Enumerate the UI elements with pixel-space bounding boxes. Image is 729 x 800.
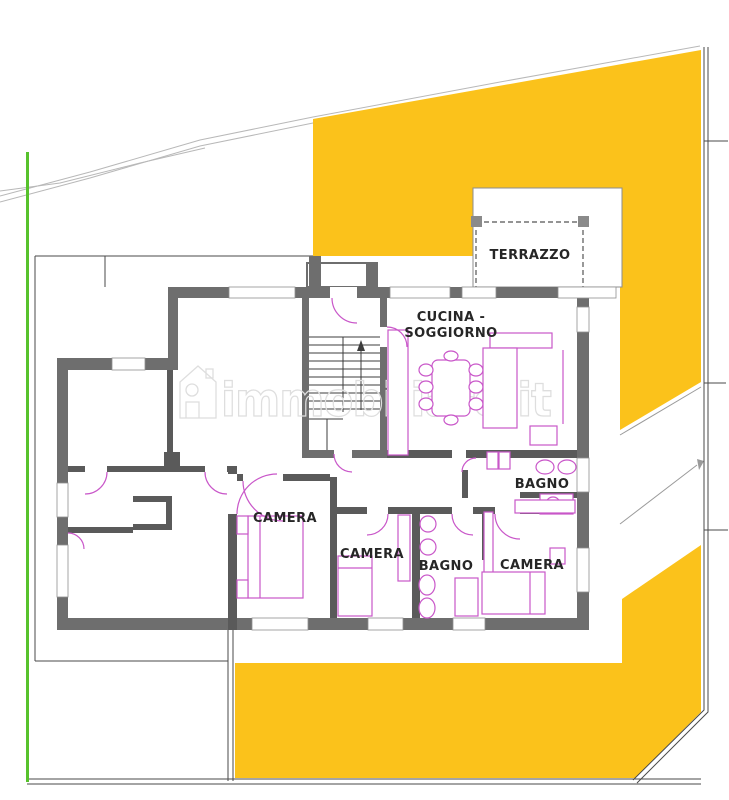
label-camera-center: CAMERA bbox=[340, 547, 404, 562]
label-bagno-center: BAGNO bbox=[419, 559, 474, 574]
terrace bbox=[471, 188, 622, 287]
entrance-porch bbox=[307, 256, 377, 287]
ramp-arrow-icon bbox=[697, 459, 704, 470]
floor-plan-drawing: immobiliare.it bbox=[0, 0, 729, 800]
label-camera-left: CAMERA bbox=[253, 511, 317, 526]
label-cucina-line2: SOGGIORNO bbox=[404, 326, 497, 341]
label-cucina-line1: CUCINA - bbox=[417, 310, 486, 325]
floor-plan-page: immobiliare.it bbox=[0, 0, 729, 800]
label-terrazzo: TERRAZZO bbox=[490, 248, 571, 263]
label-camera-right: CAMERA bbox=[500, 558, 564, 573]
label-bagno-main: BAGNO bbox=[515, 477, 570, 492]
